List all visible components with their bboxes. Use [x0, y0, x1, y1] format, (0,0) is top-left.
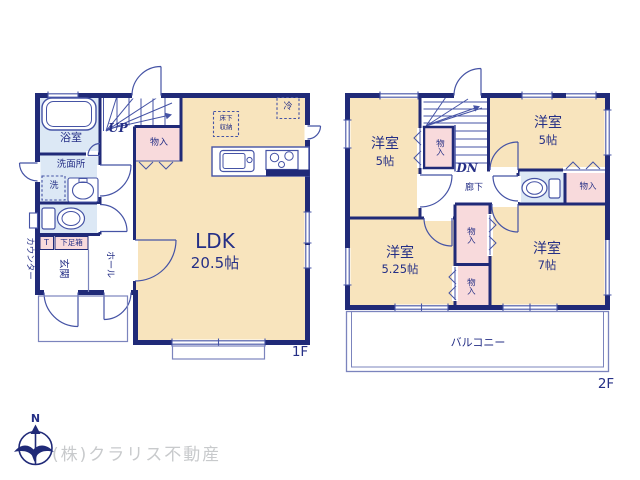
floor1-label: 1F — [283, 345, 317, 361]
room-label-bath: 浴室 — [45, 131, 97, 145]
label-corridor: 廊下 — [459, 182, 489, 194]
label-balcony: バルコニー — [428, 336, 528, 351]
kitchen-counter — [212, 147, 310, 176]
label-closet-mid-lower: 物入 — [462, 272, 477, 300]
room-size-sw: 5.25帖 — [360, 263, 440, 277]
floor1-plan — [20, 67, 321, 360]
bathtub-icon — [42, 98, 96, 130]
toilet-vestibule-2f — [490, 170, 518, 204]
room-label-sw: 洋室 — [368, 244, 432, 262]
label-fridge: 冷 — [278, 99, 298, 116]
room-size-nw: 5帖 — [350, 155, 420, 169]
room-size-se: 7帖 — [516, 259, 578, 273]
label-stairs-down: DN — [452, 161, 482, 176]
label-washer: 洗 — [46, 180, 62, 193]
room-size-ldk: 20.5帖 — [165, 255, 265, 273]
room-label-ldk: LDK — [165, 229, 265, 253]
room-label-washroom: 洗面所 — [43, 159, 99, 172]
toilet-icon-2f — [522, 179, 560, 199]
company-credit: (株)クラリス不動産 — [52, 444, 221, 468]
room-label-nw: 洋室 — [350, 135, 420, 153]
toilet-icon-1f — [42, 208, 85, 229]
compass-rose — [14, 425, 54, 465]
vanity-sink-icon — [68, 178, 98, 202]
label-underfloor-2: 収納 — [214, 123, 238, 132]
compass-north-label: N — [28, 412, 43, 426]
room-label-entrance: 玄関 — [56, 251, 71, 287]
label-shoe-box: 下足箱 — [55, 237, 88, 249]
label-underfloor-1: 床下 — [214, 114, 238, 123]
label-stairs-up: UP — [103, 121, 133, 136]
label-closet-stairs-2f: 物入 — [431, 131, 446, 164]
label-shoe-t: T — [40, 237, 53, 249]
room-label-ne: 洋室 — [517, 114, 579, 132]
room-label-hall: ホール — [103, 248, 116, 282]
terrace-step — [173, 346, 265, 359]
floorplan-canvas: 浴室 洗面所 洗 UP 物入 LDK 20.5帖 床下 収納 冷 カウンター T… — [0, 0, 640, 480]
label-closet-ne: 物入 — [569, 181, 607, 195]
room-size-ne: 5帖 — [517, 134, 579, 148]
label-closet-mid-upper: 物入 — [462, 221, 477, 249]
label-counter: カウンター — [23, 227, 36, 291]
room-label-se: 洋室 — [516, 240, 578, 258]
entrance-porch — [39, 296, 128, 342]
label-closet-1f: 物入 — [139, 136, 179, 150]
floor2-label: 2F — [589, 377, 623, 393]
